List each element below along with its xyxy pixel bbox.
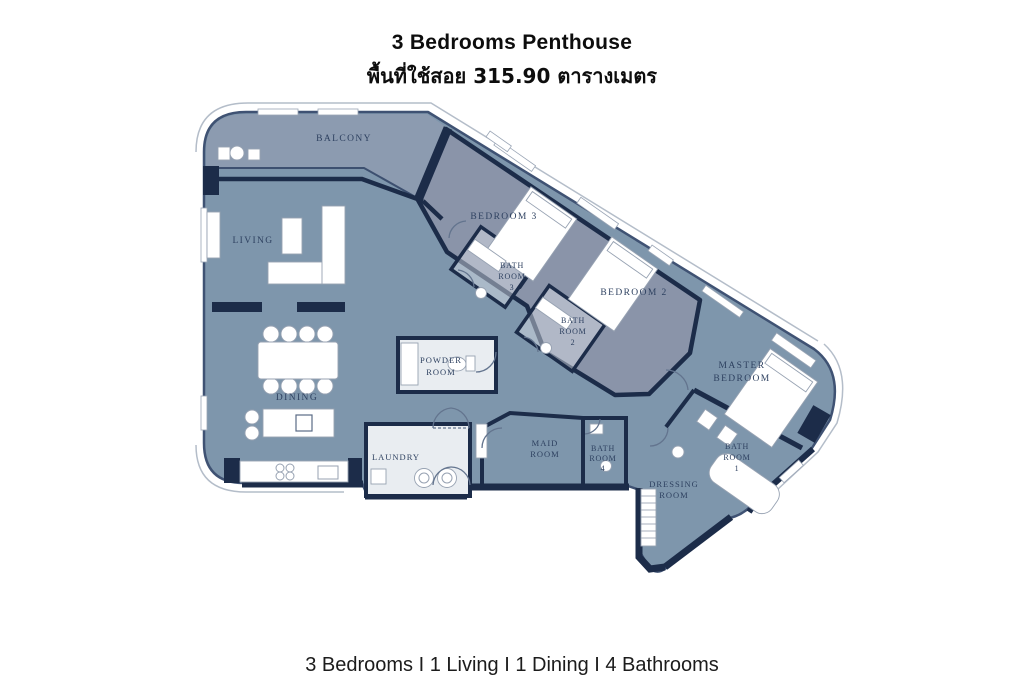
- planter-2: [230, 146, 244, 160]
- planter-3: [248, 149, 260, 160]
- planter-1: [218, 147, 230, 160]
- bath2-label-1: BATH: [561, 316, 585, 325]
- island-stool: [245, 426, 259, 440]
- dining-chair: [281, 378, 297, 394]
- bedroom2-label: BEDROOM 2: [600, 288, 667, 298]
- maid-label-1: MAID: [532, 438, 559, 448]
- balcony-label: BALCONY: [316, 134, 372, 144]
- dressing-label-1: DRESSING: [649, 479, 699, 489]
- bath1-toilet: [672, 446, 684, 458]
- bath4-label-1: BATH: [591, 444, 615, 453]
- powder-toilet-tank: [466, 356, 475, 371]
- washer: [415, 469, 434, 488]
- kitchen-island: [263, 409, 334, 437]
- balcony-window-1: [258, 109, 298, 115]
- floor-plan-drawing: BALCONY LIVING DINING BEDROOM 3 BEDROOM …: [0, 0, 1024, 682]
- coffee-table: [282, 218, 302, 254]
- bath3-label-3: 3: [510, 283, 515, 292]
- maid-label-2: ROOM: [530, 449, 560, 459]
- kitchen-wall-block-right: [348, 458, 362, 483]
- living-side-window: [201, 208, 207, 262]
- bath1-label-2: ROOM: [723, 453, 750, 462]
- bath3-label-1: BATH: [500, 261, 524, 270]
- sofa-chaise: [322, 206, 345, 284]
- bath2-toilet: [541, 343, 552, 354]
- foyer-door-leaf: [476, 424, 487, 458]
- living-dining-wall-stub-left: [212, 302, 262, 312]
- kitchen-wall-block-left: [224, 458, 240, 483]
- dining-chair: [317, 326, 333, 342]
- tv-cabinet: [207, 212, 220, 258]
- dining-chair: [263, 326, 279, 342]
- dining-chair: [263, 378, 279, 394]
- dressing-label-2: ROOM: [659, 490, 689, 500]
- laundry-label: LAUNDRY: [372, 452, 420, 462]
- living-label: LIVING: [232, 236, 273, 246]
- bedroom3-label: BEDROOM 3: [470, 212, 537, 222]
- bath2-label-2: ROOM: [559, 327, 586, 336]
- dining-side-window: [201, 396, 207, 430]
- bath4-label-2: ROOM: [589, 454, 616, 463]
- powder-label-1: POWDER: [420, 355, 462, 365]
- balcony-corner-column: [203, 166, 219, 195]
- powder-vanity: [401, 343, 418, 385]
- island-stool: [245, 410, 259, 424]
- master-label-2: BEDROOM: [713, 374, 770, 384]
- balcony-window-2: [318, 109, 358, 115]
- dressing-wardrobe: [641, 489, 656, 546]
- bath1-label-1: BATH: [725, 442, 749, 451]
- bath3-label-2: ROOM: [498, 272, 525, 281]
- master-label-1: MASTER: [719, 361, 766, 371]
- bath3-toilet: [476, 288, 487, 299]
- bath2-label-3: 2: [571, 338, 576, 347]
- floor-plan-page: 3 Bedrooms Penthouse พื้นที่ใช้สอย 315.9…: [0, 0, 1024, 682]
- living-dining-wall-stub-right: [297, 302, 345, 312]
- dining-chair: [317, 378, 333, 394]
- summary-text: 3 Bedrooms I 1 Living I 1 Dining I 4 Bat…: [0, 594, 1024, 682]
- summary-line-1: 3 Bedrooms I 1 Living I 1 Dining I 4 Bat…: [0, 651, 1024, 679]
- powder-label-2: ROOM: [426, 367, 456, 377]
- bath4-label-3: 4: [601, 464, 606, 473]
- bath1-label-3: 1: [735, 464, 740, 473]
- dining-chair: [299, 378, 315, 394]
- dining-table: [258, 342, 338, 379]
- dining-chair: [299, 326, 315, 342]
- dining-label: DINING: [276, 393, 318, 403]
- dining-chair: [281, 326, 297, 342]
- laundry-sink: [371, 469, 386, 484]
